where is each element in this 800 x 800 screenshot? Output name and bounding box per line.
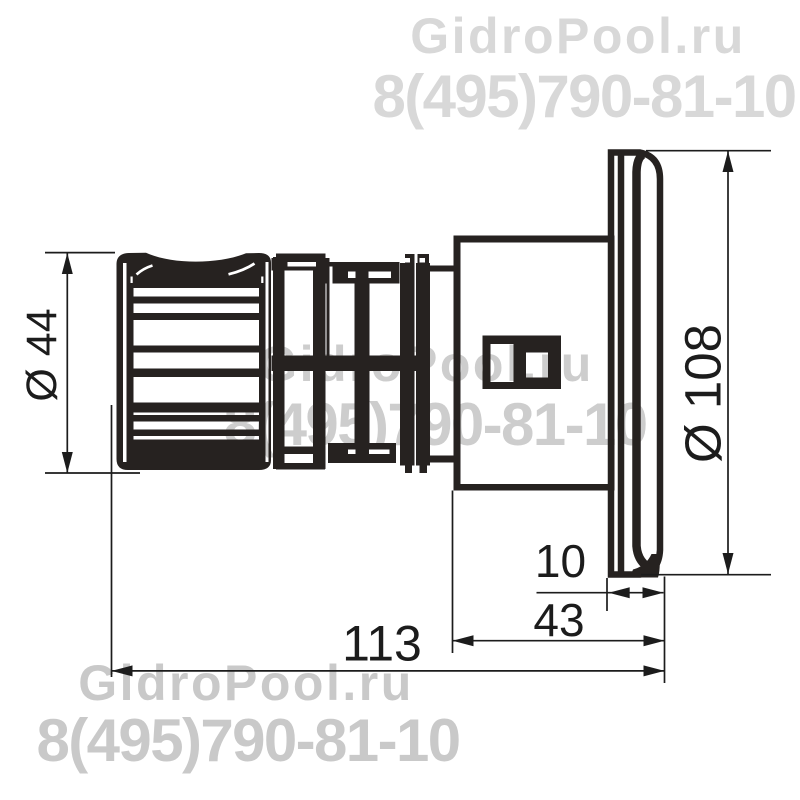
svg-text:113: 113 xyxy=(342,616,422,672)
svg-text:Ø 44: Ø 44 xyxy=(18,308,66,401)
svg-text:43: 43 xyxy=(533,594,584,646)
svg-text:10: 10 xyxy=(535,535,586,587)
svg-text:8(495)790-81-10: 8(495)790-81-10 xyxy=(37,707,460,774)
svg-text:Ø 108: Ø 108 xyxy=(675,324,732,463)
svg-text:8(495)790-81-10: 8(495)790-81-10 xyxy=(373,63,796,130)
svg-text:GidroPool.ru: GidroPool.ru xyxy=(410,8,746,64)
